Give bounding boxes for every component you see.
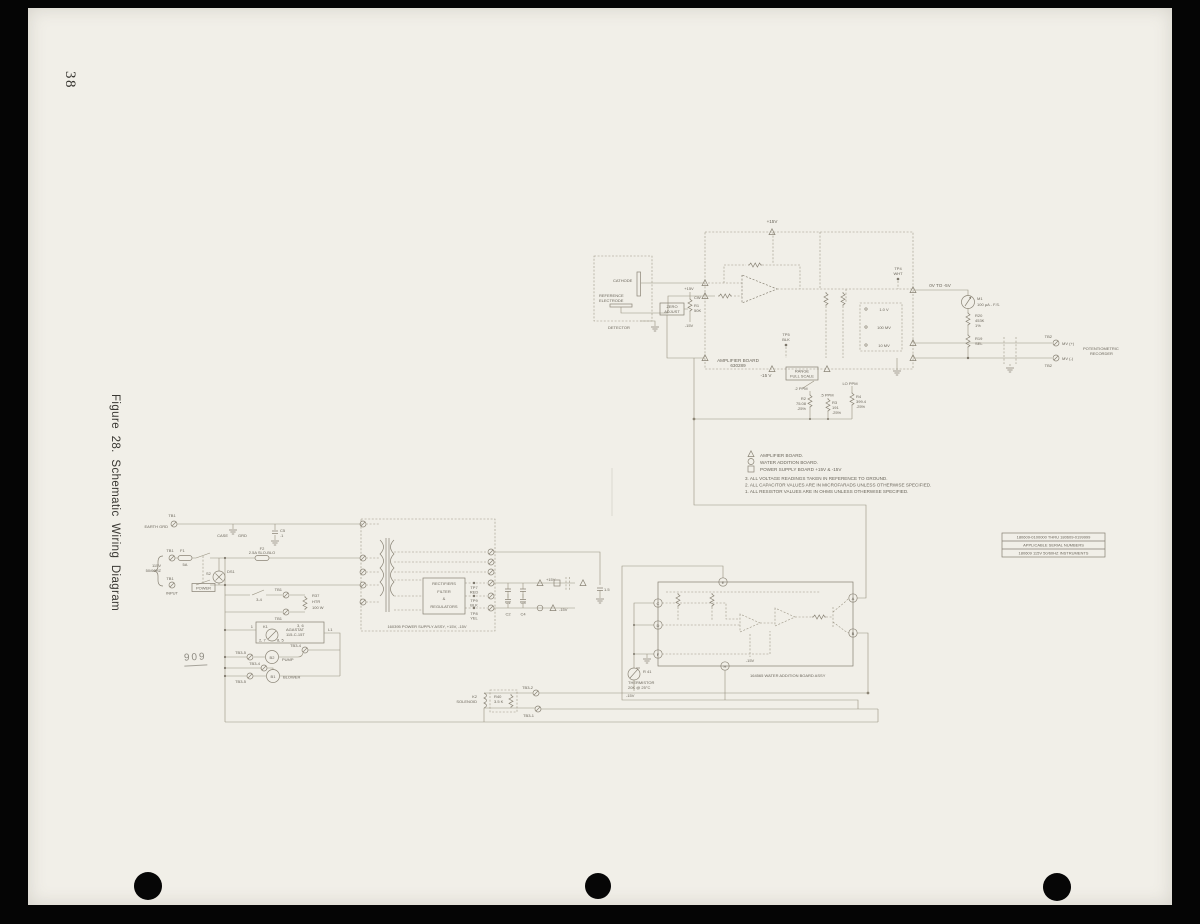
psu-output-terminals — [488, 549, 494, 611]
legend-amplifier-board: AMPLIFIER BOARD. — [760, 453, 803, 458]
tb3-1-terminal — [535, 706, 541, 712]
amplifier-resistors — [718, 263, 845, 306]
svg-text:.1: .1 — [280, 533, 284, 538]
note-2: 2. ALL CAPACITOR VALUES ARE IN MICROFARA… — [745, 483, 931, 488]
water-resistors — [676, 593, 826, 619]
svg-text:1.5: 1.5 — [604, 587, 610, 592]
serial-number-box: 180609-0100000 THRU 180609-0199999 APPLI… — [1002, 533, 1105, 557]
case-ground — [229, 530, 237, 534]
reference-electrode-plate — [610, 304, 632, 307]
plus15-pin — [537, 580, 543, 586]
power-input-section: TB1 EARTH GRD CASE GRD C5 .1 115V 50/60H… — [145, 513, 360, 596]
fuse-f1 — [178, 556, 192, 561]
tb2-terminal-plus — [1053, 340, 1059, 346]
svg-text:2, 7: 2, 7 — [259, 638, 266, 643]
legend-power-board: POWER SUPPLY BOARD +15V & -15V — [760, 467, 842, 472]
svg-text:S2: S2 — [206, 571, 212, 576]
tb1-line-terminal — [169, 555, 175, 561]
capacitor-c6 — [597, 588, 603, 590]
detector-ground — [651, 327, 659, 331]
legend-triangle-symbol — [748, 451, 754, 457]
pin-h: H — [724, 664, 727, 669]
svg-text:.25%: .25% — [856, 404, 866, 409]
earth-grd-label: EARTH GRD — [145, 524, 169, 529]
mv-minus-label: MV (-) — [1062, 356, 1074, 361]
pin-d: D — [657, 623, 660, 628]
cable-shield — [1004, 337, 1016, 367]
svg-text:C1: C1 — [505, 600, 511, 605]
meter-recorder-output: 0V TO -5V M1 100 µA - F.S. R20 453K 1% R… — [913, 283, 1119, 372]
power-supply-assembly: RECTIFIERS FILTER & REGULATORS TP7 RED T… — [360, 519, 495, 631]
water-addition-board: E C D F H A B -15V 164565 WATER ADDITION… — [626, 578, 857, 698]
pin-a: A — [852, 596, 855, 601]
resistor-r37 — [303, 596, 307, 610]
svg-text:115-C-15T: 115-C-15T — [286, 632, 305, 637]
svg-text:FULL SCALE: FULL SCALE — [790, 374, 814, 379]
tb3-2-terminal — [533, 690, 539, 696]
svg-text:TB1: TB1 — [166, 548, 174, 553]
svg-text:POWER: POWER — [196, 586, 211, 591]
amp-feed-pin — [580, 580, 586, 586]
solenoid-coil — [484, 693, 487, 708]
svg-text:1: 1 — [251, 624, 254, 629]
svg-text:3-4: 3-4 — [256, 597, 263, 602]
svg-text:INPUT: INPUT — [166, 591, 179, 596]
recorder-label-2: RECORDER — [1090, 351, 1113, 356]
mv-plus-label: MV (+) — [1062, 341, 1075, 346]
water-board-pins — [654, 578, 857, 670]
reference-label-2: ELECTRODE — [599, 298, 624, 303]
amplifier-internal-wires — [708, 232, 913, 358]
heater-wires — [225, 590, 305, 612]
meter-needle — [965, 297, 971, 306]
thermistor-wires — [634, 603, 654, 691]
svg-text:+15V: +15V — [684, 286, 694, 291]
fuse-f2 — [255, 556, 269, 561]
detector-schematic: CATHODE REFERENCE ELECTRODE DETECTOR — [594, 256, 715, 331]
tb1-gnd-terminal — [171, 521, 177, 527]
punch-hole — [134, 872, 162, 900]
tap-10mv-label: 10 MV — [878, 343, 890, 348]
svg-text:5A: 5A — [183, 562, 188, 567]
solenoid-wires — [484, 693, 878, 722]
svg-text:100 µA - F.S.: 100 µA - F.S. — [977, 302, 1000, 307]
zero-adjust-wire — [667, 315, 705, 419]
svg-text:M1: M1 — [977, 296, 983, 301]
svg-text:DS1: DS1 — [227, 569, 236, 574]
solenoid-section: K2 SOLENOID R40 3.5 K TB3-2 TB3-1 — [456, 685, 878, 722]
psu-internal-dashed — [366, 524, 487, 610]
water-internal — [662, 592, 849, 657]
svg-text:TB2: TB2 — [1045, 334, 1053, 339]
tb2-terminal-minus — [1053, 355, 1059, 361]
svg-text:B1: B1 — [271, 674, 277, 679]
legend-circle-symbol — [748, 459, 754, 465]
op-amp — [742, 275, 777, 303]
top-cap-stubs — [508, 583, 523, 598]
c5-ground — [271, 541, 279, 545]
svg-text:100 W: 100 W — [312, 605, 324, 610]
transformer — [380, 538, 394, 612]
svg-text:C4: C4 — [520, 612, 526, 617]
svg-text:HTR: HTR — [312, 599, 320, 604]
svg-text:RED: RED — [470, 590, 479, 595]
svg-text:1%: 1% — [975, 323, 981, 328]
pin-c: C — [657, 601, 660, 606]
svg-text:-15V: -15V — [559, 607, 568, 612]
svg-text:SEL: SEL — [975, 341, 983, 346]
pin-e: E — [722, 580, 725, 585]
pot-r1 — [688, 298, 692, 312]
heater-pump-blower-section: 3-4 TB1 TB1 R37 HTR 100 W K1 AGASTAT 115… — [224, 557, 340, 722]
svg-text:TB1: TB1 — [166, 576, 174, 581]
svg-text:F1: F1 — [180, 548, 185, 553]
punch-hole — [1043, 873, 1071, 901]
svg-text:TB3-4: TB3-4 — [249, 661, 261, 666]
svg-text:.25%: .25% — [832, 410, 842, 415]
svg-text:TB1: TB1 — [168, 513, 176, 518]
svg-text:-15V: -15V — [685, 323, 694, 328]
amplifier-board-schematic: 1.0 V 100 MV 10 MV +15V -15 V AMPLIFIER … — [702, 219, 916, 378]
svg-text:50/60HZ: 50/60HZ — [146, 568, 162, 573]
svg-text:8, 5: 8, 5 — [277, 638, 284, 643]
amp-board-number: 630289 — [730, 363, 746, 368]
tb1-heater-terminal-b — [283, 609, 289, 615]
amp-plus15-label: +15V — [767, 219, 779, 224]
svg-text:&: & — [443, 596, 446, 601]
range-divider: RANGE FULL SCALE .2 PPM .5 PPM LO PPM R2… — [694, 367, 867, 420]
svg-text:L1: L1 — [328, 627, 333, 632]
tb3-5b-terminal — [247, 673, 253, 679]
svg-text:PUMP: PUMP — [282, 657, 294, 662]
svg-text:TB3-1: TB3-1 — [523, 713, 535, 718]
board-pins — [702, 229, 916, 372]
thermistor-circuit: R 41 THERMISTOR 20K @ 25°C -15V — [626, 603, 654, 698]
punch-hole — [585, 873, 611, 899]
resistor-r40 — [509, 694, 513, 708]
legend-water-board: WATER ADDITION BOARD. — [760, 460, 818, 465]
svg-text:C3: C3 — [520, 600, 526, 605]
svg-text:TB1: TB1 — [275, 616, 283, 621]
svg-text:2.5A SLO-BLO: 2.5A SLO-BLO — [249, 550, 275, 555]
water-ground — [643, 659, 651, 663]
shield-ground — [1006, 368, 1014, 372]
tap-1v-label: 1.0 V — [879, 307, 889, 312]
capacitor-c5 — [272, 531, 278, 533]
amp-neg15-label: -15 V — [761, 373, 773, 378]
svg-text:WHT: WHT — [893, 271, 903, 276]
svg-text:BLOWER: BLOWER — [283, 675, 300, 680]
svg-text:R37: R37 — [312, 593, 320, 598]
range-tap-switch: 1.0 V 100 MV 10 MV — [860, 303, 902, 351]
water-assy-label: 164565 WATER ADDITION BOARD ASSY — [750, 673, 826, 678]
tap-100mv-label: 100 MV — [877, 325, 891, 330]
svg-text:CW: CW — [694, 295, 701, 300]
serial-instruments: 180609 115V 50/60HZ INSTRUMENTS — [1019, 551, 1089, 556]
svg-text:TB3-5: TB3-5 — [235, 650, 247, 655]
svg-text:K1: K1 — [263, 624, 269, 629]
svg-text:TB3-5: TB3-5 — [235, 679, 247, 684]
svg-text:ADJUST: ADJUST — [664, 309, 680, 314]
amp-ground — [893, 371, 901, 375]
svg-text:B2: B2 — [270, 655, 276, 660]
cathode-plate — [637, 272, 641, 296]
svg-text:GRD: GRD — [238, 533, 247, 538]
amplifier-board-outline — [705, 232, 913, 369]
svg-text:BLK: BLK — [470, 603, 478, 608]
test-point-tp4: TP4 WHT — [893, 266, 903, 280]
pin-b: B — [852, 631, 855, 636]
detector-outline — [594, 256, 652, 321]
svg-text:.25%: .25% — [797, 406, 807, 411]
water-minus15-internal: -15V — [746, 658, 755, 663]
resistor-r19 — [966, 334, 970, 348]
test-point-tp5: TP5 BLK — [782, 332, 790, 346]
svg-text:3.5 K: 3.5 K — [494, 699, 504, 704]
svg-text:3, 6: 3, 6 — [297, 623, 304, 628]
tb3-4-terminal — [302, 647, 308, 653]
ov-to-5v-label: 0V TO -5V — [929, 283, 951, 288]
svg-text:BLK: BLK — [782, 337, 790, 342]
psu-output-rails: C1 C3 C2 C4 +15V -15V 1.5 — [494, 552, 610, 617]
svg-text:TB2: TB2 — [1045, 363, 1053, 368]
note-3: 3. ALL VOLTAGE READINGS TAKEN IN REFEREN… — [745, 476, 888, 481]
schematic-drawing: 1.0 V 100 MV 10 MV +15V -15 V AMPLIFIER … — [0, 0, 1200, 924]
legend-square-symbol — [748, 466, 754, 472]
pin-f: F — [657, 652, 660, 657]
svg-text:RECTIFIERS: RECTIFIERS — [432, 581, 456, 586]
ppm-lo-label: LO PPM — [842, 381, 857, 386]
serial-range: 180609-0100000 THRU 180609-0199999 — [1017, 535, 1092, 540]
svg-text:50K: 50K — [694, 308, 701, 313]
notes-legend: AMPLIFIER BOARD. WATER ADDITION BOARD. P… — [745, 451, 931, 494]
rail-ground — [596, 599, 604, 603]
detector-label: DETECTOR — [608, 325, 630, 330]
thermistor-minus15: -15V — [626, 693, 635, 698]
svg-text:CASE: CASE — [217, 533, 228, 538]
svg-text:SOLENOID: SOLENOID — [456, 699, 477, 704]
divider-wires — [694, 386, 852, 419]
water-board-outline — [658, 582, 853, 666]
svg-text:REGULATORS: REGULATORS — [430, 604, 458, 609]
svg-text:TB3-4: TB3-4 — [290, 643, 302, 648]
svg-text:TB3-2: TB3-2 — [522, 685, 534, 690]
svg-text:FILTER: FILTER — [437, 589, 451, 594]
tb1-heater-terminal-a — [283, 592, 289, 598]
cathode-label: CATHODE — [613, 278, 633, 283]
psu-assy-label: 160395 POWER SUPPLY ASSY, +15V, -15V — [387, 624, 466, 629]
resistor-r20 — [966, 312, 970, 326]
zero-adjust-circuit: ZERO ADJUST +15V CW R1 50K -15V — [660, 286, 705, 419]
ppm-05-label: .5 PPM — [820, 393, 833, 398]
note-1: 1. ALL RESISTOR VALUES ARE IN OHMS UNLES… — [745, 489, 908, 494]
tb1-neutral-terminal — [169, 582, 175, 588]
tb3-5-terminal — [247, 654, 253, 660]
svg-text:YEL: YEL — [470, 616, 478, 621]
svg-text:C2: C2 — [505, 612, 511, 617]
minus15-pin — [550, 605, 556, 611]
serial-title: APPLICABLE SERIAL NUMBERS — [1023, 543, 1084, 548]
ppm-02-label: .2 PPM — [794, 386, 807, 391]
svg-text:20K @ 25°C: 20K @ 25°C — [628, 685, 650, 690]
svg-text:R 41: R 41 — [643, 669, 652, 674]
svg-text:TB1: TB1 — [275, 587, 283, 592]
